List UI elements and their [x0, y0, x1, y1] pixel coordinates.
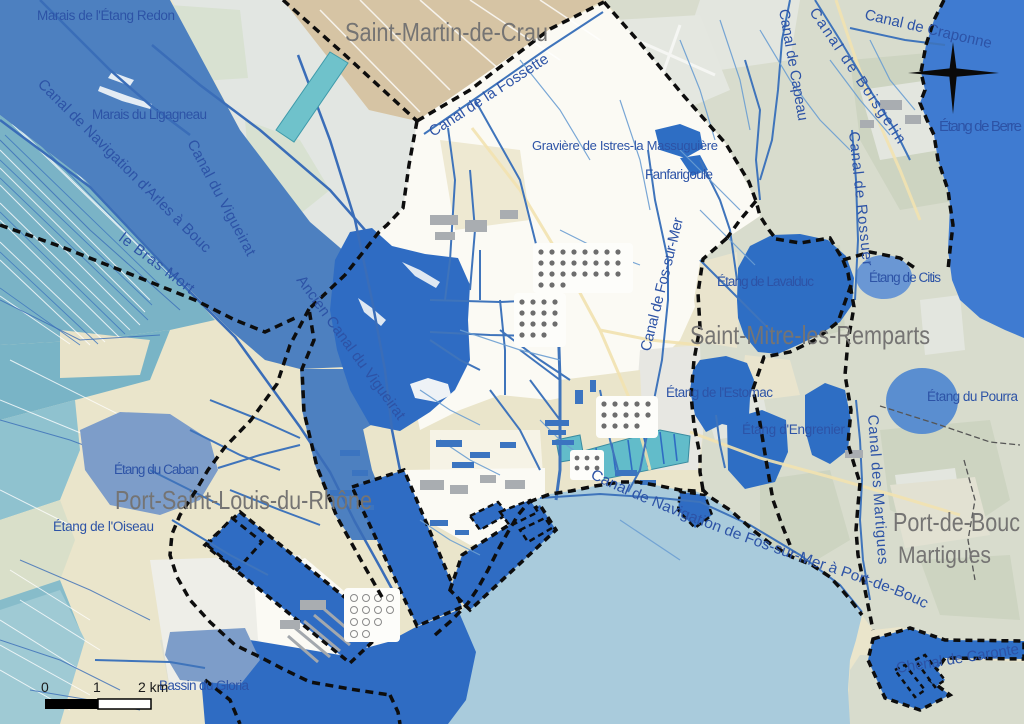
- svg-text:Bassin du Gloria: Bassin du Gloria: [159, 678, 249, 693]
- svg-text:Étang de l'Estomac: Étang de l'Estomac: [666, 385, 773, 400]
- svg-text:Étang de Lavalduc: Étang de Lavalduc: [717, 274, 814, 289]
- svg-text:Étang d'Engrenier: Étang d'Engrenier: [742, 422, 846, 437]
- svg-text:Gravière de Istres-la Massugui: Gravière de Istres-la Massuguière: [532, 138, 718, 153]
- svg-text:Port-Saint-Louis-du-Rhône: Port-Saint-Louis-du-Rhône: [115, 485, 372, 515]
- svg-text:Martigues: Martigues: [898, 542, 991, 569]
- svg-text:0: 0: [41, 679, 49, 695]
- svg-text:2 km: 2 km: [138, 679, 168, 695]
- svg-text:Étang de Citis: Étang de Citis: [869, 270, 941, 285]
- svg-text:Saint-Martin-de-Crau: Saint-Martin-de-Crau: [345, 17, 548, 47]
- svg-text:Marais de l'Étang Redon: Marais de l'Étang Redon: [37, 8, 175, 23]
- svg-text:Fanfarigoule: Fanfarigoule: [645, 167, 713, 182]
- svg-text:Étang du Caban: Étang du Caban: [114, 462, 199, 477]
- svg-text:Port-de-Bouc: Port-de-Bouc: [893, 507, 1020, 537]
- svg-text:Marais du Ligagneau: Marais du Ligagneau: [92, 107, 207, 122]
- svg-text:Étang de l'Oiseau: Étang de l'Oiseau: [53, 519, 154, 534]
- svg-text:Saint-Mitre-les-Remparts: Saint-Mitre-les-Remparts: [690, 320, 930, 350]
- svg-text:Étang de Berre: Étang de Berre: [939, 118, 1022, 135]
- svg-text:1: 1: [93, 679, 101, 695]
- svg-text:Étang du Pourra: Étang du Pourra: [927, 389, 1018, 404]
